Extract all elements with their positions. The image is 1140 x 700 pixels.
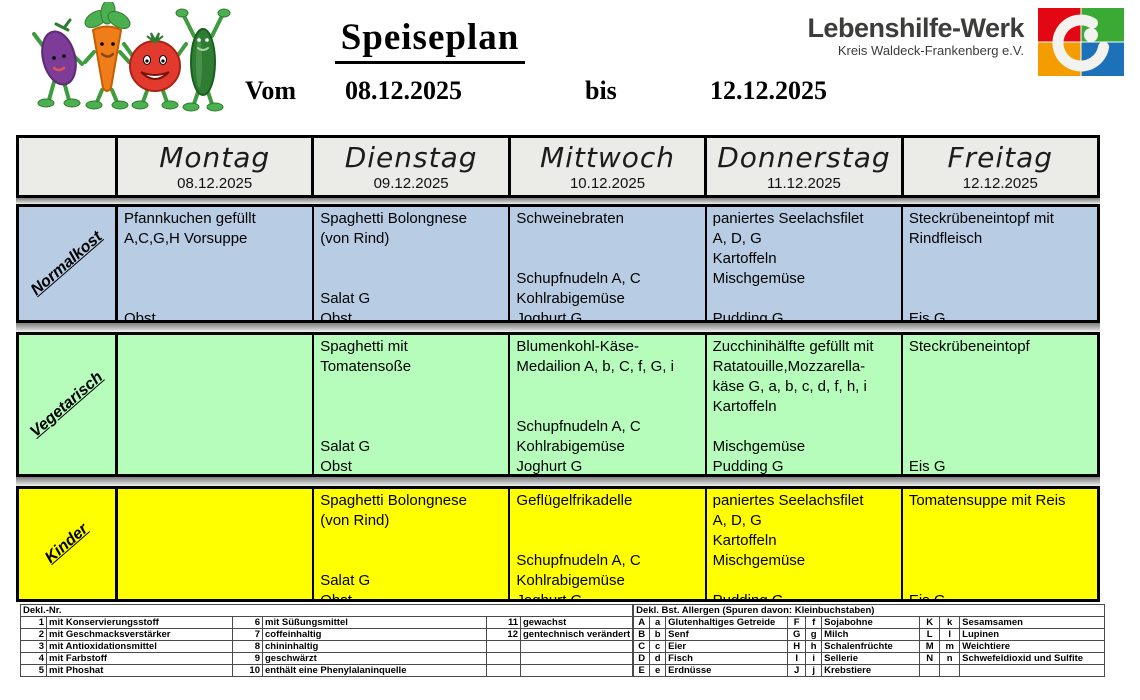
row-label-vegetarisch: Vegetarisch [19,335,118,474]
row-label-text: Kinder [42,521,92,568]
legend-cell: F [788,617,806,629]
legend-cell: G [788,629,806,641]
legend-cell: Erdnüsse [666,665,788,677]
row-label-text: Normalkost [28,228,106,299]
legend-row: 2 mit Geschmacksverstärker 7 coffeinhalt… [21,629,633,641]
cell-normalkost-dienstag: Spaghetti Bolongnese (von Rind) Salat G … [312,207,508,320]
menu-table: Montag 08.12.2025 Dienstag 09.12.2025 Mi… [16,135,1100,602]
legend-cell: 4 [21,653,47,665]
legend-cell: k [940,617,960,629]
legend-cell [521,653,633,665]
day-date: 09.12.2025 [314,175,507,192]
legend-allergen-table: Dekl. Bst. Allergen (Spuren davon: Klein… [633,604,1105,677]
cell-kinder-donnerstag: paniertes Seelachsfilet A, D, G Kartoffe… [705,489,901,599]
legend-header-row: Dekl.-Nr. [21,605,633,617]
legend-cell: 1 [21,617,47,629]
legend-cell: Sojabohne [822,617,920,629]
legend-cell: K [920,617,940,629]
legend-cell: chininhaltig [263,641,487,653]
row-divider [16,323,1100,332]
day-column-dienstag: Dienstag 09.12.2025 [311,138,507,195]
row-kinder: Kinder Spaghetti Bolongnese (von Rind) S… [16,486,1100,602]
day-name: Dienstag [314,141,507,175]
legend-cell: E [634,665,650,677]
row-label-kinder: Kinder [19,489,118,599]
day-header-row: Montag 08.12.2025 Dienstag 09.12.2025 Mi… [16,135,1100,198]
legend-cell [487,641,521,653]
legend-row: 5 mit Phoshat 10 enthält eine Phenylalan… [21,665,633,677]
legend-cell: a [650,617,666,629]
day-column-donnerstag: Donnerstag 11.12.2025 [704,138,900,195]
legend-row: B b Senf G g Milch L l Lupinen [634,629,1105,641]
legend-cell: N [920,653,940,665]
speiseplan-document: { "header": { "title": "Speiseplan", "vo… [0,0,1140,700]
cell-vegetarisch-montag [118,335,312,474]
row-label-text: Vegetarisch [27,368,107,441]
legend-cell: Lupinen [960,629,1105,641]
legend-cell: 11 [487,617,521,629]
legend-cell: Senf [666,629,788,641]
legend-cell: mit Süßungsmittel [263,617,487,629]
legend-cell: enthält eine Phenylalaninquelle [263,665,487,677]
row-vegetarisch: Vegetarisch Spaghetti mit Tomatensoße Sa… [16,332,1100,477]
legend-cell: 7 [233,629,263,641]
tomato-character-icon [124,33,186,109]
page-header: Speiseplan Vom 08.12.2025 bis 12.12.2025… [0,0,1140,132]
row-divider [16,477,1100,486]
cell-normalkost-donnerstag: paniertes Seelachsfilet A, D, G Kartoffe… [705,207,901,320]
legend-cell: Fisch [666,653,788,665]
legend-dekl-nr-table: Dekl.-Nr. 1 mit Konservierungsstoff 6 mi… [20,604,633,677]
legend-cell: c [650,641,666,653]
legend-cell: mit Konservierungsstoff [47,617,233,629]
page-title: Speiseplan [335,16,526,64]
legend-cell: M [920,641,940,653]
end-date: 12.12.2025 [710,76,827,106]
legend-cell [521,665,633,677]
legend-cell: m [940,641,960,653]
vegetables-illustration [26,2,234,120]
legend-cell [521,641,633,653]
organization-name: Lebenshilfe-Werk [807,14,1024,42]
legend-cell: 2 [21,629,47,641]
legend-cell: coffeinhaltig [263,629,487,641]
legend: Dekl.-Nr. 1 mit Konservierungsstoff 6 mi… [20,604,1105,677]
day-name: Freitag [904,141,1097,175]
legend-cell: Weichtiere [960,641,1105,653]
day-date: 10.12.2025 [511,175,704,192]
legend-cell: mit Geschmacksverstärker [47,629,233,641]
cell-vegetarisch-freitag: Steckrübeneintopf Eis G [901,335,1097,474]
start-date: 08.12.2025 [345,76,462,106]
legend-cell: I [788,653,806,665]
legend-cell [960,665,1105,677]
eggplant-character-icon [34,20,82,107]
legend-cell: C [634,641,650,653]
legend-row: 1 mit Konservierungsstoff 6 mit Süßungsm… [21,617,633,629]
legend-cell: mit Antioxidationsmittel [47,641,233,653]
legend-row: 3 mit Antioxidationsmittel 8 chininhalti… [21,641,633,653]
carrot-character-icon [82,2,133,109]
legend-cell: gewachst [521,617,633,629]
day-name: Montag [118,141,311,175]
legend-cell: f [806,617,822,629]
legend-cell: mit Phoshat [47,665,233,677]
legend-left-title: Dekl.-Nr. [21,605,633,617]
legend-cell: Schwefeldioxid und Sulfite [960,653,1105,665]
cell-normalkost-mittwoch: Schweinebraten Schupfnudeln A, C Kohlrab… [508,207,704,320]
legend-cell: n [940,653,960,665]
organization-subtitle: Kreis Waldeck-Frankenberg e.V. [807,44,1024,58]
legend-cell: b [650,629,666,641]
legend-cell: geschwärzt [263,653,487,665]
legend-cell: Milch [822,629,920,641]
legend-cell: h [806,641,822,653]
cell-kinder-mittwoch: Geflügelfrikadelle Schupfnudeln A, C Koh… [508,489,704,599]
legend-cell: gentechnisch verändert [521,629,633,641]
row-label-normalkost: Normalkost [19,207,118,320]
legend-cell: Krebstiere [822,665,920,677]
legend-row: 4 mit Farbstoff 9 geschwärzt [21,653,633,665]
cell-normalkost-freitag: Steckrübeneintopf mit Rindfleisch Eis G [901,207,1097,320]
cucumber-character-icon [176,9,230,111]
day-date: 08.12.2025 [118,175,311,192]
legend-cell: Glutenhaltiges Getreide [666,617,788,629]
legend-cell: g [806,629,822,641]
legend-cell: 8 [233,641,263,653]
legend-cell: 10 [233,665,263,677]
legend-cell [487,665,521,677]
organization-block: Lebenshilfe-Werk Kreis Waldeck-Frankenbe… [807,14,1024,58]
cell-kinder-montag [118,489,312,599]
legend-cell [940,665,960,677]
legend-cell: d [650,653,666,665]
legend-cell: D [634,653,650,665]
legend-cell: 6 [233,617,263,629]
day-column-mittwoch: Mittwoch 10.12.2025 [508,138,704,195]
legend-cell: L [920,629,940,641]
legend-row: A a Glutenhaltiges Getreide F f Sojabohn… [634,617,1105,629]
cell-vegetarisch-donnerstag: Zucchinihälfte gefüllt mit Ratatouille,M… [705,335,901,474]
legend-cell: J [788,665,806,677]
legend-cell: Eier [666,641,788,653]
legend-cell: l [940,629,960,641]
day-column-montag: Montag 08.12.2025 [118,138,311,195]
legend-cell: mit Farbstoff [47,653,233,665]
cell-normalkost-montag: Pfannkuchen gefüllt A,C,G,H Vorsuppe Obs… [118,207,312,320]
legend-cell: A [634,617,650,629]
legend-cell: 5 [21,665,47,677]
legend-cell: 9 [233,653,263,665]
legend-cell: B [634,629,650,641]
day-name: Donnerstag [707,141,900,175]
day-date: 12.12.2025 [904,175,1097,192]
legend-right-title: Dekl. Bst. Allergen (Spuren davon: Klein… [634,605,1105,617]
legend-cell: 12 [487,629,521,641]
legend-cell: Schalenfrüchte [822,641,920,653]
vom-label: Vom [245,76,296,106]
legend-row: C c Eier H h Schalenfrüchte M m Weichtie… [634,641,1105,653]
legend-cell: i [806,653,822,665]
legend-cell [920,665,940,677]
legend-cell [487,653,521,665]
day-name: Mittwoch [511,141,704,175]
legend-cell: j [806,665,822,677]
legend-row: E e Erdnüsse J j Krebstiere [634,665,1105,677]
legend-header-row: Dekl. Bst. Allergen (Spuren davon: Klein… [634,605,1105,617]
cell-kinder-freitag: Tomatensuppe mit Reis Eis G [901,489,1097,599]
bis-label: bis [585,76,617,106]
cell-vegetarisch-dienstag: Spaghetti mit Tomatensoße Salat G Obst [312,335,508,474]
legend-row: D d Fisch I i Sellerie N n Schwefeldioxi… [634,653,1105,665]
legend-cell: Sellerie [822,653,920,665]
lebenshilfe-logo-icon [1038,8,1124,76]
legend-cell: e [650,665,666,677]
cell-vegetarisch-mittwoch: Blumenkohl-Käse- Medailion A, b, C, f, G… [508,335,704,474]
day-date: 11.12.2025 [707,175,900,192]
legend-cell: 3 [21,641,47,653]
legend-cell: Sesamsamen [960,617,1105,629]
cell-kinder-dienstag: Spaghetti Bolongnese (von Rind) Salat G … [312,489,508,599]
legend-cell: H [788,641,806,653]
day-column-freitag: Freitag 12.12.2025 [901,138,1097,195]
corner-cell [19,138,118,195]
row-normalkost: Normalkost Pfannkuchen gefüllt A,C,G,H V… [16,204,1100,323]
